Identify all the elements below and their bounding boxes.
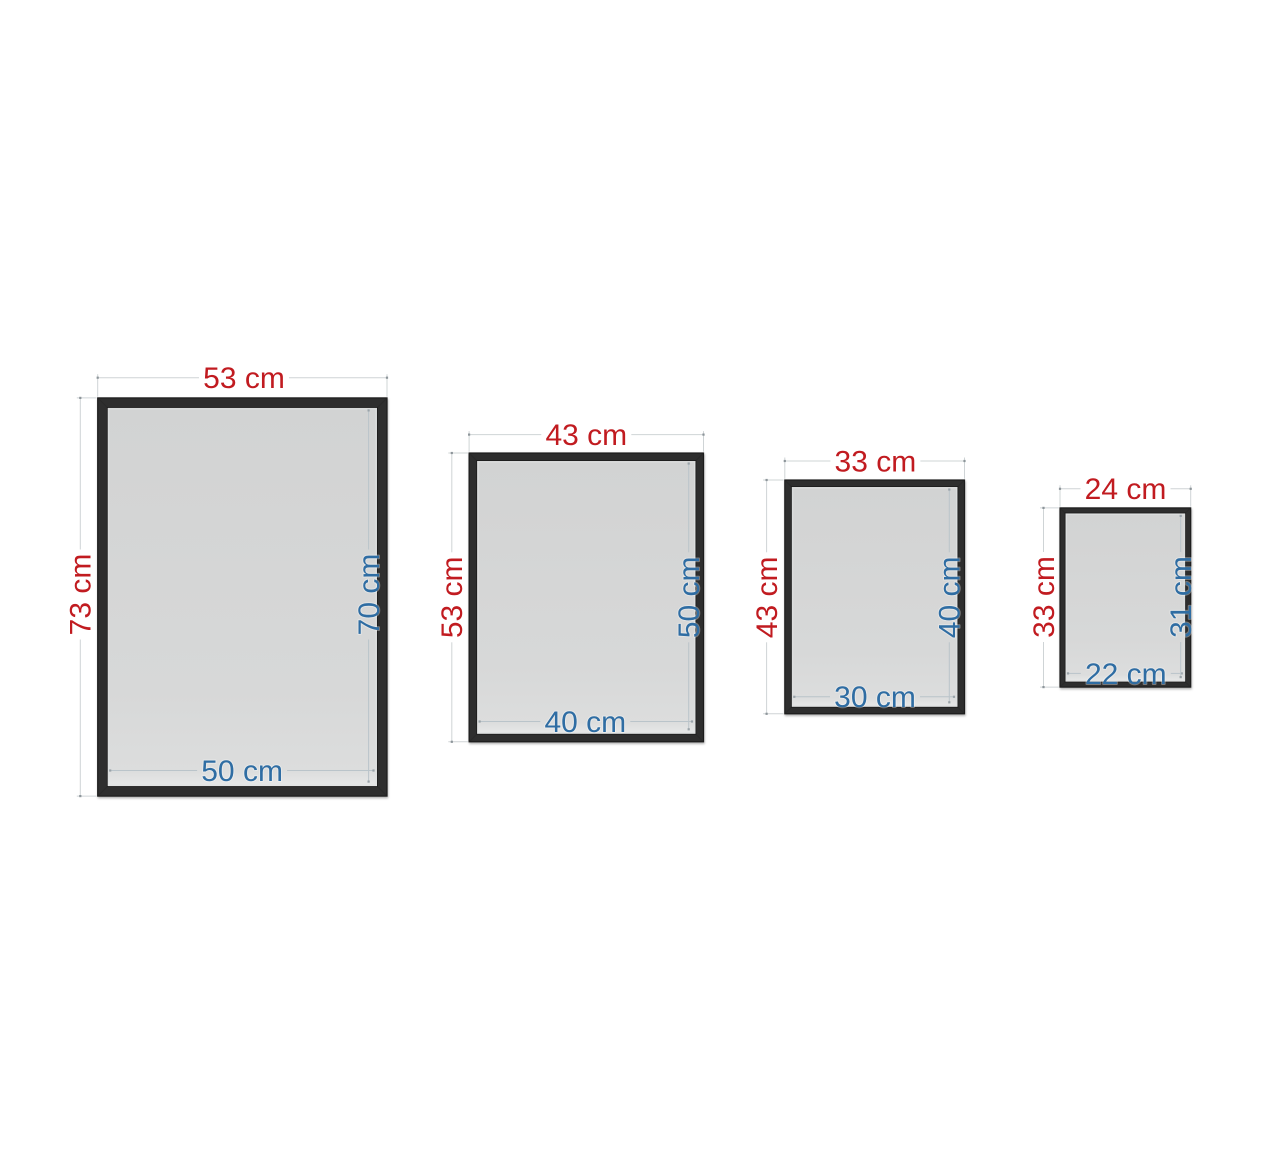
svg-text:22 cm: 22 cm [1085,658,1167,691]
svg-text:50 cm: 50 cm [201,755,283,788]
svg-text:40 cm: 40 cm [934,556,967,638]
svg-text:53 cm: 53 cm [436,556,469,638]
svg-text:73 cm: 73 cm [65,554,98,636]
svg-text:33 cm: 33 cm [1028,556,1061,638]
svg-text:31 cm: 31 cm [1165,556,1198,638]
svg-text:70 cm: 70 cm [353,554,386,636]
svg-text:30 cm: 30 cm [834,681,916,714]
svg-text:33 cm: 33 cm [835,445,917,478]
svg-text:43 cm: 43 cm [545,419,627,452]
svg-text:43 cm: 43 cm [751,556,784,638]
svg-text:40 cm: 40 cm [544,706,626,739]
svg-text:53 cm: 53 cm [203,362,285,395]
svg-text:24 cm: 24 cm [1085,473,1167,506]
svg-text:50 cm: 50 cm [673,556,706,638]
